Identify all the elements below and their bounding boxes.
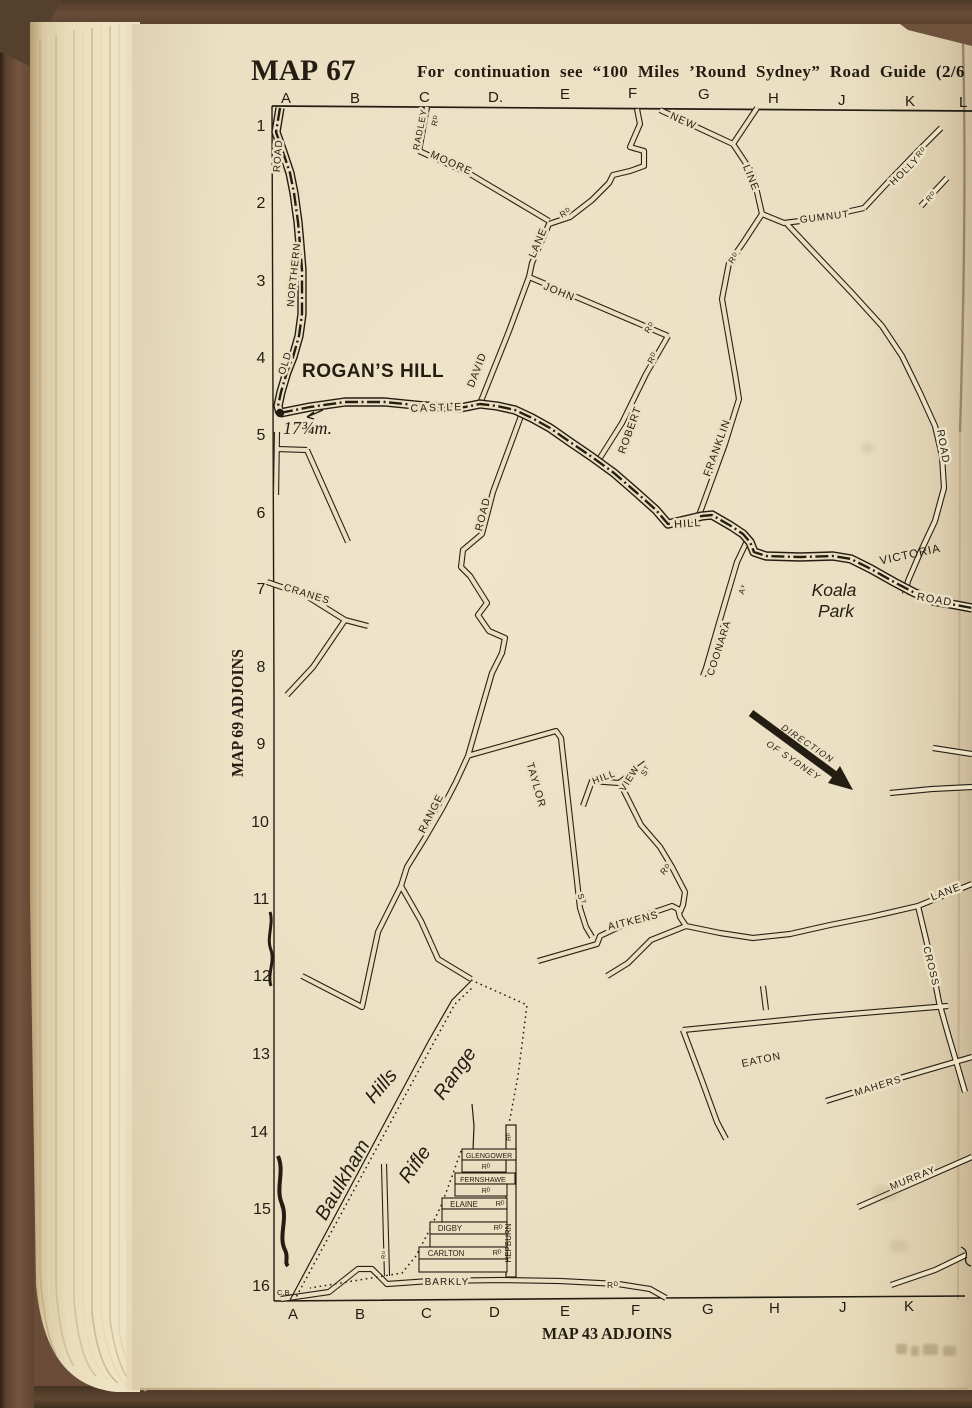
svg-text:Park: Park xyxy=(818,601,855,621)
svg-text:ROAD: ROAD xyxy=(272,139,285,173)
svg-text:FERNSHAWE: FERNSHAWE xyxy=(460,1175,506,1184)
svg-text:10: 10 xyxy=(251,814,269,831)
svg-text:MAP 43 ADJOINS: MAP 43 ADJOINS xyxy=(542,1324,672,1343)
svg-text:D: D xyxy=(489,1304,500,1321)
svg-text:Rᴰ: Rᴰ xyxy=(494,1223,503,1232)
svg-text:ELAINE: ELAINE xyxy=(450,1200,478,1209)
svg-text:For continuation see “100 Mile: For continuation see “100 Miles ’Round S… xyxy=(417,62,965,81)
svg-text:15: 15 xyxy=(253,1201,271,1218)
svg-text:Rᴰ: Rᴰ xyxy=(493,1248,502,1257)
svg-text:H: H xyxy=(768,90,779,107)
svg-text:3: 3 xyxy=(257,273,266,290)
svg-text:J: J xyxy=(838,92,846,109)
svg-text:A: A xyxy=(281,90,291,107)
svg-text:14: 14 xyxy=(250,1124,268,1141)
svg-text:16: 16 xyxy=(252,1278,270,1295)
svg-text:A: A xyxy=(288,1306,298,1323)
svg-text:11: 11 xyxy=(253,891,270,908)
svg-text:C: C xyxy=(419,89,430,106)
svg-text:E: E xyxy=(560,86,570,103)
svg-text:G: G xyxy=(698,86,710,103)
svg-text:Rᴰ: Rᴰ xyxy=(482,1162,491,1171)
svg-text:8: 8 xyxy=(257,659,266,676)
svg-text:G: G xyxy=(702,1301,714,1318)
svg-text:7: 7 xyxy=(257,581,266,598)
svg-text:B: B xyxy=(350,90,360,107)
svg-text:CASTLE: CASTLE xyxy=(410,401,463,415)
svg-text:MAP 69 ADJOINS: MAP 69 ADJOINS xyxy=(228,649,247,777)
svg-text:Rᴰ: Rᴰ xyxy=(607,1280,619,1290)
svg-text:6: 6 xyxy=(257,505,266,522)
svg-text:Rᴰ: Rᴰ xyxy=(506,1133,513,1141)
svg-text:HILL: HILL xyxy=(674,517,702,531)
svg-text:C.B.: C.B. xyxy=(277,1288,292,1297)
svg-text:CARLTON: CARLTON xyxy=(428,1249,465,1258)
svg-text:K: K xyxy=(904,1298,914,1315)
svg-text:9: 9 xyxy=(257,736,266,753)
svg-text:K: K xyxy=(905,93,915,110)
svg-text:12: 12 xyxy=(253,968,271,985)
svg-text:Rᴰ: Rᴰ xyxy=(482,1186,491,1195)
svg-text:Koala: Koala xyxy=(812,580,857,600)
svg-text:17¾m.: 17¾m. xyxy=(283,418,332,438)
svg-text:HEPBURN: HEPBURN xyxy=(504,1223,513,1262)
svg-text:13: 13 xyxy=(252,1046,270,1063)
svg-text:GLENGOWER: GLENGOWER xyxy=(466,1153,512,1160)
svg-text:F: F xyxy=(631,1302,640,1319)
svg-text:BARKLY: BARKLY xyxy=(425,1277,470,1288)
svg-text:D.: D. xyxy=(488,89,503,106)
svg-text:L: L xyxy=(959,94,967,111)
svg-text:H: H xyxy=(769,1300,780,1317)
svg-text:B: B xyxy=(355,1306,365,1323)
svg-text:DIGBY: DIGBY xyxy=(438,1224,463,1233)
svg-text:ROGAN’S HILL: ROGAN’S HILL xyxy=(302,361,444,382)
svg-text:MAP67: MAP67 xyxy=(251,55,356,87)
svg-text:J: J xyxy=(839,1299,847,1316)
svg-text:4: 4 xyxy=(257,350,266,367)
svg-text:5: 5 xyxy=(257,427,266,444)
svg-text:F: F xyxy=(628,85,637,102)
svg-text:1: 1 xyxy=(257,118,266,135)
svg-text:2: 2 xyxy=(257,195,266,212)
svg-text:E: E xyxy=(560,1303,570,1320)
svg-text:C: C xyxy=(421,1305,432,1322)
svg-text:Rᴰ: Rᴰ xyxy=(496,1199,505,1208)
